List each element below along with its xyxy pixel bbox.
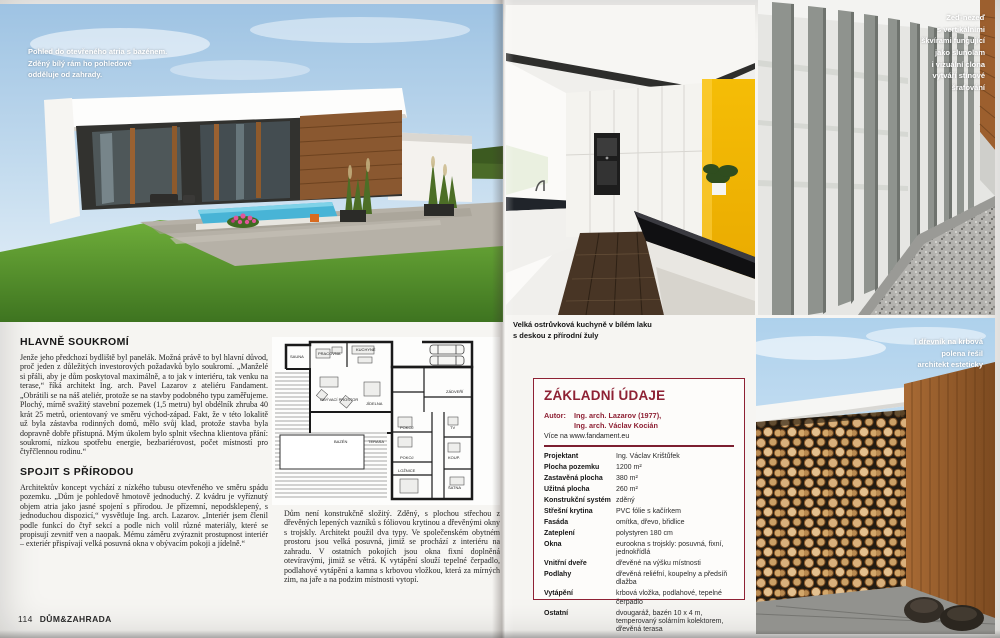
- infobox-row-label: Zastavěná plocha: [544, 475, 616, 483]
- magazine-spread: Pohled do otevřeného atria s bazénem. Zd…: [0, 0, 1000, 638]
- slit-wall-caption: Zeď-nezeď s vertikálními škvírami funguj…: [875, 12, 985, 93]
- section-title-priroda: SPOJIT S PŘÍRODOU: [20, 466, 268, 478]
- infobox-row: Vnitřní dveředřevěné na výšku místnosti: [544, 560, 734, 568]
- infobox-row-label: Projektant: [544, 453, 616, 461]
- infobox-row: Konstrukční systémzděný: [544, 497, 734, 505]
- infobox-row-label: Užitná plocha: [544, 486, 616, 494]
- room-label-koupelna: KOUP.: [448, 455, 460, 460]
- infobox-row-label: Ostatní: [544, 610, 616, 635]
- article-middle-column: Dům není konstrukčně složitý. Zděný, s p…: [284, 509, 500, 585]
- infobox-row-value: dřevěné na výšku místnosti: [616, 560, 701, 568]
- infobox-author-names: Ing. arch. Lazarov (1977), Ing. arch. Vá…: [574, 411, 661, 431]
- infobox-row-value: 1200 m²: [616, 464, 642, 472]
- infobox-row-value: dřevěná reliéfní, koupelny a předsíň dla…: [616, 571, 734, 588]
- infobox-row-value: 260 m²: [616, 486, 638, 494]
- infobox-rows: ProjektantIng. Václav KrištůfekPlocha po…: [544, 453, 734, 635]
- infobox-row-label: Zateplení: [544, 530, 616, 538]
- kitchen-caption: Velká ostrůvková kuchyně v bílém laku s …: [513, 319, 652, 342]
- infobox-row-label: Podlahy: [544, 571, 616, 588]
- room-label-obyvaci: OBÝVACÍ PROSTOR: [320, 397, 358, 402]
- room-label-pokoj1: POKOJ: [400, 425, 414, 430]
- room-label-tv: TV: [450, 425, 455, 430]
- infobox-row: Podlahydřevěná reliéfní, koupelny a před…: [544, 571, 734, 588]
- infobox-row-value: eurookna s trojskly: posuvná, fixní, jed…: [616, 541, 734, 558]
- infobox-row-value: polystyren 180 cm: [616, 530, 673, 538]
- infobox-row-value: Ing. Václav Krištůfek: [616, 453, 680, 461]
- section-body-soukromi: Jenže jeho předchozí bydliště byl panelá…: [20, 353, 268, 457]
- infobox-row-value: zděný: [616, 497, 635, 505]
- infobox-row-label: Konstrukční systém: [544, 497, 616, 505]
- slit-wall-photo: Zeď-nezeď s vertikálními škvírami funguj…: [758, 0, 995, 315]
- section-body-priroda: Architektův koncept vychází z nízkého tu…: [20, 483, 268, 549]
- infobox-row-label: Okna: [544, 541, 616, 558]
- infobox-author-row: Autor: Ing. arch. Lazarov (1977), Ing. a…: [544, 411, 734, 431]
- infobox-website: Více na www.fandament.eu: [544, 433, 734, 440]
- floor-plan-drawing: SAUNA PRACOVNA KUCHYNĚ OBÝVACÍ PROSTOR J…: [272, 337, 500, 505]
- infobox-author-label: Autor:: [544, 411, 574, 431]
- room-label-terasa: TERASA: [368, 439, 384, 444]
- infobox-row-label: Vnitřní dveře: [544, 560, 616, 568]
- room-label-zadveri: ZÁDVEŘÍ: [446, 389, 464, 394]
- infobox-row-value: PVC fólie s kačírkem: [616, 508, 681, 516]
- floor-plan: SAUNA PRACOVNA KUCHYNĚ OBÝVACÍ PROSTOR J…: [272, 337, 500, 505]
- infobox-row: Střešní krytinaPVC fólie s kačírkem: [544, 508, 734, 516]
- room-label-sauna: SAUNA: [290, 354, 304, 359]
- page-number: 114: [18, 614, 33, 624]
- infobox-row-label: Vytápění: [544, 590, 616, 607]
- atrium-photo-caption: Pohled do otevřeného atria s bazénem. Zd…: [28, 46, 167, 81]
- infobox-row-label: Fasáda: [544, 519, 616, 527]
- page-footer: 114DŮM&ZAHRADA: [18, 614, 112, 624]
- room-label-loznice: LOŽNICE: [398, 468, 416, 473]
- room-label-satna: ŠATNA: [448, 485, 461, 490]
- infobox-title: ZÁKLADNÍ ÚDAJE: [544, 388, 734, 403]
- infobox-row-label: Střešní krytina: [544, 508, 616, 516]
- infobox-row-value: 380 m²: [616, 475, 638, 483]
- infobox-row: Ostatnídvougaráž, bazén 10 x 4 m, temper…: [544, 610, 734, 635]
- firewood-caption: I dřevník na krbová polena řešil archite…: [873, 336, 983, 371]
- infobox-row: Užitná plocha260 m²: [544, 486, 734, 494]
- kitchen-photo-art: [506, 5, 755, 315]
- room-label-pokoj2: POKOJ: [400, 455, 414, 460]
- infobox-row: Oknaeurookna s trojskly: posuvná, fixní,…: [544, 541, 734, 558]
- infobox-row: Fasádaomítka, dřevo, břidlice: [544, 519, 734, 527]
- infobox-row-value: dvougaráž, bazén 10 x 4 m, temperovaný s…: [616, 610, 734, 635]
- infobox-divider: [544, 445, 734, 447]
- firewood-photo: I dřevník na krbová polena řešil archite…: [756, 318, 995, 634]
- infobox-row: Zateplenípolystyren 180 cm: [544, 530, 734, 538]
- article-left-column: HLAVNĚ SOUKROMÍ Jenže jeho předchozí byd…: [20, 336, 268, 549]
- room-label-jidelna: JÍDELNA: [366, 401, 383, 406]
- atrium-pool-photo: Pohled do otevřeného atria s bazénem. Zd…: [0, 4, 503, 322]
- infobox-row: Zastavěná plocha380 m²: [544, 475, 734, 483]
- infobox-row-value: krbová vložka, podlahové, tepelné čerpad…: [616, 590, 734, 607]
- room-label-bazen: BAZÉN: [334, 439, 347, 444]
- infobox-zakladni-udaje: ZÁKLADNÍ ÚDAJE Autor: Ing. arch. Lazarov…: [533, 378, 745, 600]
- infobox-row-label: Plocha pozemku: [544, 464, 616, 472]
- infobox-row: ProjektantIng. Václav Krištůfek: [544, 453, 734, 461]
- section-title-soukromi: HLAVNĚ SOUKROMÍ: [20, 336, 268, 348]
- infobox-row: Vytápěníkrbová vložka, podlahové, tepeln…: [544, 590, 734, 607]
- magazine-brand: DŮM&ZAHRADA: [40, 614, 112, 624]
- article-continuation: Dům není konstrukčně složitý. Zděný, s p…: [284, 509, 500, 585]
- room-label-pracovna: PRACOVNA: [318, 351, 341, 356]
- infobox-row: Plocha pozemku1200 m²: [544, 464, 734, 472]
- kitchen-photo: [506, 5, 755, 315]
- infobox-row-value: omítka, dřevo, břidlice: [616, 519, 684, 527]
- room-label-kuchyne: KUCHYNĚ: [356, 347, 376, 352]
